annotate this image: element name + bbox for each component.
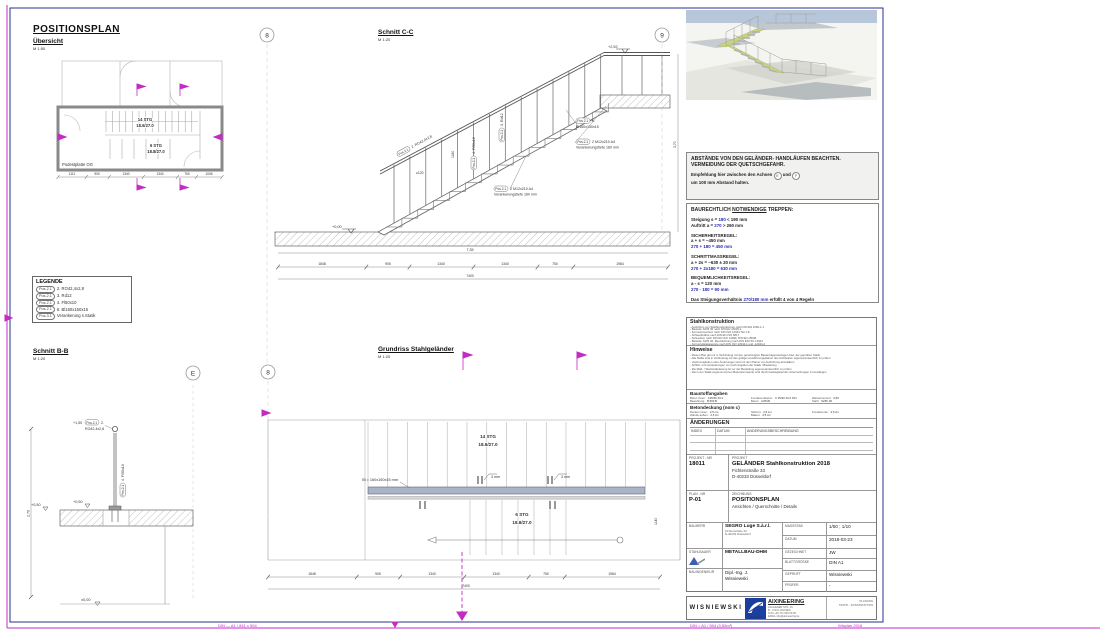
stg6-value: 18.8/27.0 — [512, 520, 532, 525]
dim-1180: 1180 — [451, 151, 455, 158]
pos-chip: Pos.2.1 — [577, 140, 588, 144]
service-line: STATIK - KONSTRUKTION — [827, 604, 873, 608]
dim-270: 2,70 — [27, 510, 31, 517]
callout-text: 4. Fl50x10 — [121, 464, 125, 481]
warning-line-2: VERMEIDUNG DER QUETSCHGEFAHR. — [691, 162, 874, 168]
title-block: Stahlkonstruktion - Ausführen von Stahlk… — [686, 317, 877, 592]
section-title: ÄNDERUNGEN — [690, 419, 873, 427]
total-dim: 7400 — [278, 274, 668, 279]
rules-title: BAURECHTLICH NOTWENDIGE TREPPEN: — [691, 207, 874, 213]
page-title: POSITIONSPLAN — [33, 24, 120, 35]
dim-120: ≥120 — [416, 171, 424, 175]
gr-total-dim: 7400 — [268, 584, 660, 589]
betondeckung-section: Betondeckung (nom c) Decken innen:2,5 cm… — [687, 404, 876, 419]
dim: 1006 — [205, 172, 212, 176]
legend-text: 3. Rd12 — [57, 293, 72, 299]
gr-dim-numbers: 1848 905 1340 1340 750 1984 — [308, 572, 616, 576]
legend-text: 2. RO42,4x2,8 — [57, 286, 84, 292]
schnitt-cc-drawing: +0,00 +2,52 1180 ≥120 3,70 Pos.2.1 2. RO… — [270, 40, 690, 290]
legend-item: Pos.2.1 2. RO42,4x2,8 — [36, 286, 128, 293]
flat-bar — [368, 497, 645, 500]
steps — [386, 103, 609, 227]
zeichnung-name: POSITIONSPLAN — [732, 496, 873, 504]
aixineering-logo: AIXINEERING — [745, 598, 766, 619]
wisniewski-label: WISNIEWSKI — [687, 597, 745, 619]
grundriss-drawing: 3 mm 3 mm 14 STG 18.6/27.0 6 STG 18.8/27… — [260, 350, 690, 625]
dim: 1984 — [608, 572, 616, 576]
stringer — [378, 108, 607, 235]
stg14-label: 14 STG — [480, 434, 496, 439]
existing-rooms — [62, 61, 222, 107]
aenderungen-header: INDEX DATUM ÄNDERUNGSBESCHREIBUNG — [690, 428, 873, 436]
stair-3d-render — [686, 10, 877, 100]
stg14-value: 18.6/27.0 — [136, 123, 154, 128]
callout-text: Verankerungstiefe 160 mm — [494, 193, 537, 197]
callout-text: Verankerungstiefe 160 mm — [576, 146, 619, 150]
aixineering-block: AIXINEERING AACHENER STR. 19 B - 4710 LO… — [766, 597, 826, 619]
aenderungen-empty-row — [690, 443, 873, 451]
firm-addr: EMAIL info@aixineering.be — [768, 615, 804, 618]
projekt-name: GELÄNDER Stahlkonstruktion 2018 — [732, 460, 873, 468]
legend-item: Pos.2.1 3. Rd12 — [36, 293, 128, 300]
dim: 750 — [184, 172, 190, 176]
stg6-label: 6 STG — [150, 143, 162, 148]
col-header: DATUM — [716, 428, 746, 435]
col-header: INDEX — [690, 428, 716, 435]
gr-stair-labels: 14 STG 18.6/27.0 6 STG 18.8/27.0 — [478, 434, 532, 525]
stg14-label: 14 STG — [138, 117, 152, 122]
dim: 1340 — [156, 172, 163, 176]
massstab-value: 1/50 ; 1/10 — [829, 524, 874, 530]
datum-value: 2018-03-23 — [829, 537, 874, 543]
aixineering-name: AIXINEERING — [768, 599, 804, 606]
plan-dim-line — [57, 175, 224, 179]
level-mark: +0,50 — [31, 503, 41, 507]
stg14-value: 18.6/27.0 — [478, 442, 498, 447]
note-line: - Die in der Statik angenommenen Bodenke… — [690, 371, 873, 375]
pos-chip: Pos.2.1 — [36, 306, 55, 313]
field-label: BLATTGRÖSSE — [785, 560, 824, 564]
firm-services: PLANUNG STATIK - KONSTRUKTION — [826, 597, 876, 619]
stg6-value: 18.8/27.0 — [147, 149, 165, 154]
hinweise-section: Hinweise - Dieser Plan gilt nur in Verbi… — [687, 346, 876, 390]
dim: 1848 — [318, 262, 326, 266]
pos-chip: Pos.2.1 — [577, 119, 588, 123]
dim: 1848 — [308, 572, 316, 576]
wisplan-note: Wisplan 2018 — [838, 623, 862, 628]
callout-text: 2. — [101, 421, 104, 425]
field-label: GEZEICHNET — [785, 550, 824, 554]
aenderungen-table: INDEX DATUM ÄNDERUNGSBESCHREIBUNG — [690, 427, 873, 455]
post-section — [112, 426, 117, 507]
field-label: PRÜFER — [785, 583, 824, 587]
stahlkonstruktion-section: Stahlkonstruktion - Ausführen von Stahlk… — [687, 318, 876, 346]
axis-e-bubble: E — [774, 172, 782, 180]
aenderungen-empty-row — [690, 436, 873, 444]
handrail-band — [368, 487, 645, 494]
metallbau-logo — [689, 557, 705, 565]
schnitt-bb-drawing: +0,50 +0,50 ±0,00 +1,50 Pos.2.1 2. RO42,… — [25, 345, 225, 625]
axis-bubble-9: 9 — [660, 33, 664, 40]
legend-text: Verankerung s.Statik — [57, 313, 96, 319]
legend-title: LEGENDE — [36, 279, 128, 285]
pos-chip: Pos.2.1 — [398, 147, 410, 156]
dim-chain — [276, 265, 670, 270]
field-label: MASSSTAB — [785, 524, 824, 528]
pos-chip: Pos.3.1 — [36, 313, 55, 320]
plan-dim-numbers: 1111 900 1340 1340 750 1006 — [69, 172, 213, 176]
dim: 1340 — [428, 572, 436, 576]
callout-rd12: Pos.2.1 3. Rd12 — [499, 113, 504, 142]
ground-section — [60, 506, 193, 526]
callout-text: 2. RO42,4x2,8 — [411, 134, 433, 149]
axis-f-bubble: F — [792, 172, 800, 180]
dim: 900 — [94, 172, 100, 176]
bb-lower-lines — [60, 526, 170, 604]
dim: 905 — [385, 262, 391, 266]
field-label: DATUM — [785, 537, 824, 541]
rule-line: 270 + 180 = 450 mm — [691, 244, 874, 250]
pos-chip: Pos.2.1 — [36, 293, 55, 300]
blattgroesse-value: DIN A1 — [829, 560, 874, 566]
pruefer-value: - — [829, 583, 874, 589]
dim-right: 3,70 — [673, 141, 677, 148]
rules-title-part: NOTWENDIGE — [732, 207, 766, 213]
dim: 750 — [552, 262, 558, 266]
zeichnung-sub: Ansichten / Querschnitte / Details — [732, 504, 873, 510]
pos-chip: Pos.2.1 — [500, 130, 504, 141]
geprueft-value: Wisniewski — [829, 572, 874, 578]
gr-dim-chain — [266, 575, 662, 580]
rule-conclusion: Das Steigungsverhältnis 270/180 mm erfül… — [691, 297, 874, 303]
sheet-size-note-left: DIN — A1 / 841 x 594 — [218, 623, 257, 628]
plan-section: PLAN - NR P-01 ZEICHNUNG POSITIONSPLAN A… — [687, 491, 876, 523]
baustoffangaben-section: Baustoffangaben Beton innen:C25/30 XC1 F… — [687, 390, 876, 404]
uebersicht-plan: 14 STG 18.6/27.0 6 STG 18.8/27.0 Podestp… — [50, 55, 290, 205]
rule-line: Auftritt a = 270 > 260 mm — [691, 223, 874, 229]
level-mark: +0,50 — [73, 500, 83, 504]
legend-item: Pos.2.1 4. Fl50x10 — [36, 300, 128, 307]
warning-line-4: um 100 mm Abstand halten. — [691, 180, 874, 186]
bauherr-addr: D-40233 Düsseldorf — [725, 533, 780, 536]
gr-treads-upper — [368, 422, 645, 487]
uebersicht-title: Übersicht — [33, 38, 63, 45]
pos-chip: Pos.2.1 — [472, 158, 476, 169]
upper-landing-slab — [600, 95, 670, 108]
projekt-addr: D-40233 Düsseldorf — [732, 474, 873, 480]
level-top: +1,50 — [73, 421, 82, 425]
rule-line: 270 + 2x180 = 630 mm — [691, 266, 874, 272]
dim: 1340 — [492, 572, 500, 576]
axis-bubble-8: 8 — [265, 33, 269, 40]
legend-item: Pos.3.1 Verankerung s.Statik — [36, 313, 128, 320]
callout-rail: Pos.2.1 2. RO42,4x2,8 — [396, 134, 433, 158]
legend-item: Pos.2.1 6. Bl160x150x15 — [36, 306, 128, 313]
pos-chip: Pos.2.1 — [36, 300, 55, 307]
projekt-nr: 18011 — [689, 460, 726, 468]
level-top: +2,52 — [608, 45, 618, 49]
uebersicht-scale: M 1:50 — [33, 46, 45, 51]
abstand-warning-box: ABSTÄNDE VON DEN GELÄNDER- HANDLÄUFEN BE… — [686, 152, 879, 200]
span-value: 7,35 — [467, 248, 474, 252]
sky — [686, 10, 877, 23]
plan-nr: P-01 — [689, 496, 726, 504]
dim: 750 — [543, 572, 549, 576]
run-arrow — [428, 537, 623, 543]
rules-title-part: BAURECHTLICH — [691, 207, 731, 213]
rule-line: 270 - 180 = 90 mm — [691, 287, 874, 293]
warning-text: und — [783, 172, 791, 177]
stg6-label: 6 STG — [515, 512, 529, 517]
total-value: 7400 — [466, 274, 474, 278]
sheet-size-note: DIN = A1 / 594 (0,50m²) — [690, 623, 732, 628]
field-label: STAHLBAUER — [689, 550, 720, 554]
plan-inner-lines — [64, 111, 200, 167]
warning-text: Empfehlung hier zwischen den Achsen — [691, 172, 772, 177]
ground-slab — [275, 232, 670, 246]
plate-label: Bl = 160x150x15 mm — [362, 478, 398, 482]
dim: 1111 — [69, 172, 76, 176]
span-dim: 7,35 — [278, 248, 668, 253]
dim: 1340 — [437, 262, 445, 266]
weld-callouts: 3 mm 3 mm — [484, 474, 570, 480]
level-mark: ±0,00 — [81, 598, 90, 602]
field-label: BAUINGENIEUR — [689, 570, 720, 574]
weld-label: 3 mm — [491, 475, 500, 479]
dim-numbers: 1848 905 1340 1340 750 1984 — [318, 262, 624, 266]
gezeichnet-value: JW — [829, 550, 874, 556]
level-0: +0,00 — [332, 225, 342, 229]
field-label: GEPRÜFT — [785, 572, 824, 576]
logo-caption: AIXINEERING — [748, 616, 762, 619]
col-header: ÄNDERUNGSBESCHREIBUNG — [746, 428, 873, 435]
total-value: 7400 — [462, 584, 470, 588]
podest-label: Podestplatte OG — [62, 162, 93, 167]
rules-title-part: TREPPEN: — [768, 207, 793, 213]
dim: 905 — [375, 572, 381, 576]
stahlbauer-name: METALLBAU-DHM — [725, 550, 780, 556]
callout-text: 2 M12x210 A4 — [592, 140, 615, 144]
gr-treads-lower — [470, 500, 566, 555]
pos-chip: Pos.2.1 — [121, 485, 125, 496]
firm-strip: WISNIEWSKI AIXINEERING AIXINEERING AACHE… — [686, 596, 877, 620]
pos-chip: Pos.2.1 — [36, 286, 55, 293]
plate-callout: Bl = 160x150x15 mm — [362, 478, 410, 488]
aenderungen-section: ÄNDERUNGEN INDEX DATUM ÄNDERUNGSBESCHREI… — [687, 419, 876, 455]
legend-text: 4. Fl50x10 — [57, 300, 77, 306]
dim: 1984 — [616, 262, 624, 266]
callout-text: 3. Rd12 — [500, 113, 504, 126]
right-vertical-dim: 3,70 — [673, 54, 678, 232]
dim: 1340 — [122, 172, 129, 176]
warning-line-3: Empfehlung hier zwischen den Achsen E un… — [691, 172, 874, 180]
projekt-section: PROJEKT - NR 18011 PROJEKT GELÄNDER Stah… — [687, 455, 876, 491]
legend-box: LEGENDE Pos.2.1 2. RO42,4x2,8 Pos.2.1 3.… — [32, 276, 132, 323]
callout-text: RO42,4x2,8 — [85, 427, 104, 431]
legend-text: 6. Bl160x150x15 — [57, 307, 88, 313]
plan-stair-labels: 14 STG 18.6/27.0 6 STG 18.8/27.0 — [136, 117, 165, 154]
bb-callout-top: +1,50 Pos.2.1 2. RO42,4x2,8 — [73, 420, 113, 431]
gr-vdim: 1140 — [654, 518, 658, 525]
bb-left-dim: 2,70 — [27, 427, 34, 599]
drawing-sheet: { "frame": { "bottom_left2": "DIN — A1 /… — [0, 0, 1120, 631]
weld-label: 3 mm — [561, 475, 570, 479]
bauingenieur-name: Wisniewski — [725, 576, 780, 582]
dim: 1340 — [501, 262, 509, 266]
field-label: BAUHERR — [689, 524, 720, 528]
pos-chip: Pos.2.1 — [86, 421, 97, 425]
schnitt-cc-title: Schnitt C-C — [378, 29, 413, 36]
pos-chip: Pos.2.1 — [495, 187, 506, 191]
treppen-regeln-box: BAURECHTLICH NOTWENDIGE TREPPEN: Steigun… — [686, 203, 879, 303]
callout-fl: Pos.2.1 4. Fl50x10 — [471, 137, 476, 170]
callout-text: 4. Fl50x10 — [472, 137, 476, 154]
landing-posts — [622, 55, 662, 95]
callout-text: 2 M12x210 A4 — [510, 187, 533, 191]
bb-callout-flat: Pos.2.1 4. Fl50x10 — [120, 464, 125, 497]
parties-grid: BAUHERR SEGRO Luge S.à.r.l. Fichtenstraß… — [687, 523, 876, 592]
